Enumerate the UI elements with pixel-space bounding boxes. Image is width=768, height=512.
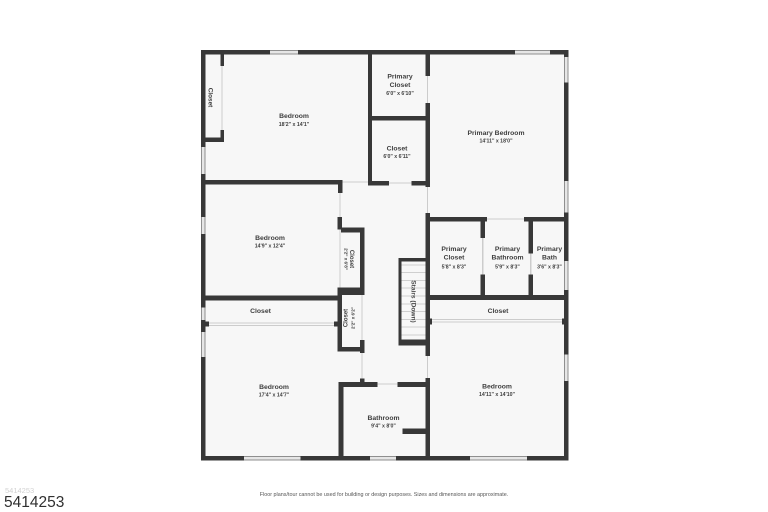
svg-text:Closet: Closet [390, 82, 412, 89]
svg-text:Primary: Primary [387, 73, 413, 80]
svg-text:Closet: Closet [207, 88, 214, 108]
svg-text:Primary: Primary [495, 246, 521, 253]
svg-text:2'2" x 6'8": 2'2" x 6'8" [343, 248, 348, 270]
svg-text:Bedroom: Bedroom [259, 384, 289, 391]
svg-text:14'9" x 12'4": 14'9" x 12'4" [255, 244, 286, 250]
svg-text:6'0" x 6'10": 6'0" x 6'10" [386, 91, 414, 97]
svg-text:Closet: Closet [250, 308, 272, 315]
svg-text:Primary Bedroom: Primary Bedroom [467, 130, 524, 137]
svg-text:Closet: Closet [488, 308, 510, 315]
svg-text:2'2" x 6'2": 2'2" x 6'2" [350, 307, 355, 329]
svg-text:Closet: Closet [387, 145, 409, 152]
svg-text:Bedroom: Bedroom [255, 235, 285, 242]
svg-text:Bedroom: Bedroom [482, 383, 512, 390]
svg-text:Bathroom: Bathroom [367, 415, 399, 422]
svg-text:18'2" x 14'1": 18'2" x 14'1" [279, 122, 310, 128]
svg-text:Bathroom: Bathroom [491, 254, 523, 261]
svg-text:Bedroom: Bedroom [279, 113, 309, 120]
svg-text:5'9" x 8'3": 5'9" x 8'3" [495, 264, 520, 270]
svg-text:Bath: Bath [542, 254, 557, 261]
svg-text:Closet: Closet [444, 254, 466, 261]
svg-text:6'0" x 6'11": 6'0" x 6'11" [383, 154, 411, 160]
svg-text:5'8" x 8'3": 5'8" x 8'3" [442, 264, 467, 270]
svg-text:14'11" x 18'0": 14'11" x 18'0" [479, 139, 513, 145]
svg-text:Floor plans/tour cannot be use: Floor plans/tour cannot be used for buil… [260, 492, 508, 498]
svg-text:Closet: Closet [344, 309, 350, 327]
svg-text:17'4" x 14'7": 17'4" x 14'7" [259, 393, 290, 399]
svg-text:3'6" x 8'3": 3'6" x 8'3" [537, 264, 562, 270]
svg-text:5414253: 5414253 [4, 494, 64, 511]
svg-text:14'11" x 14'10": 14'11" x 14'10" [479, 392, 515, 398]
svg-text:Primary: Primary [537, 246, 563, 253]
svg-text:9'4" x 8'0": 9'4" x 8'0" [371, 423, 396, 429]
svg-text:Primary: Primary [441, 246, 467, 253]
svg-text:Stairs (Down): Stairs (Down) [410, 280, 417, 323]
